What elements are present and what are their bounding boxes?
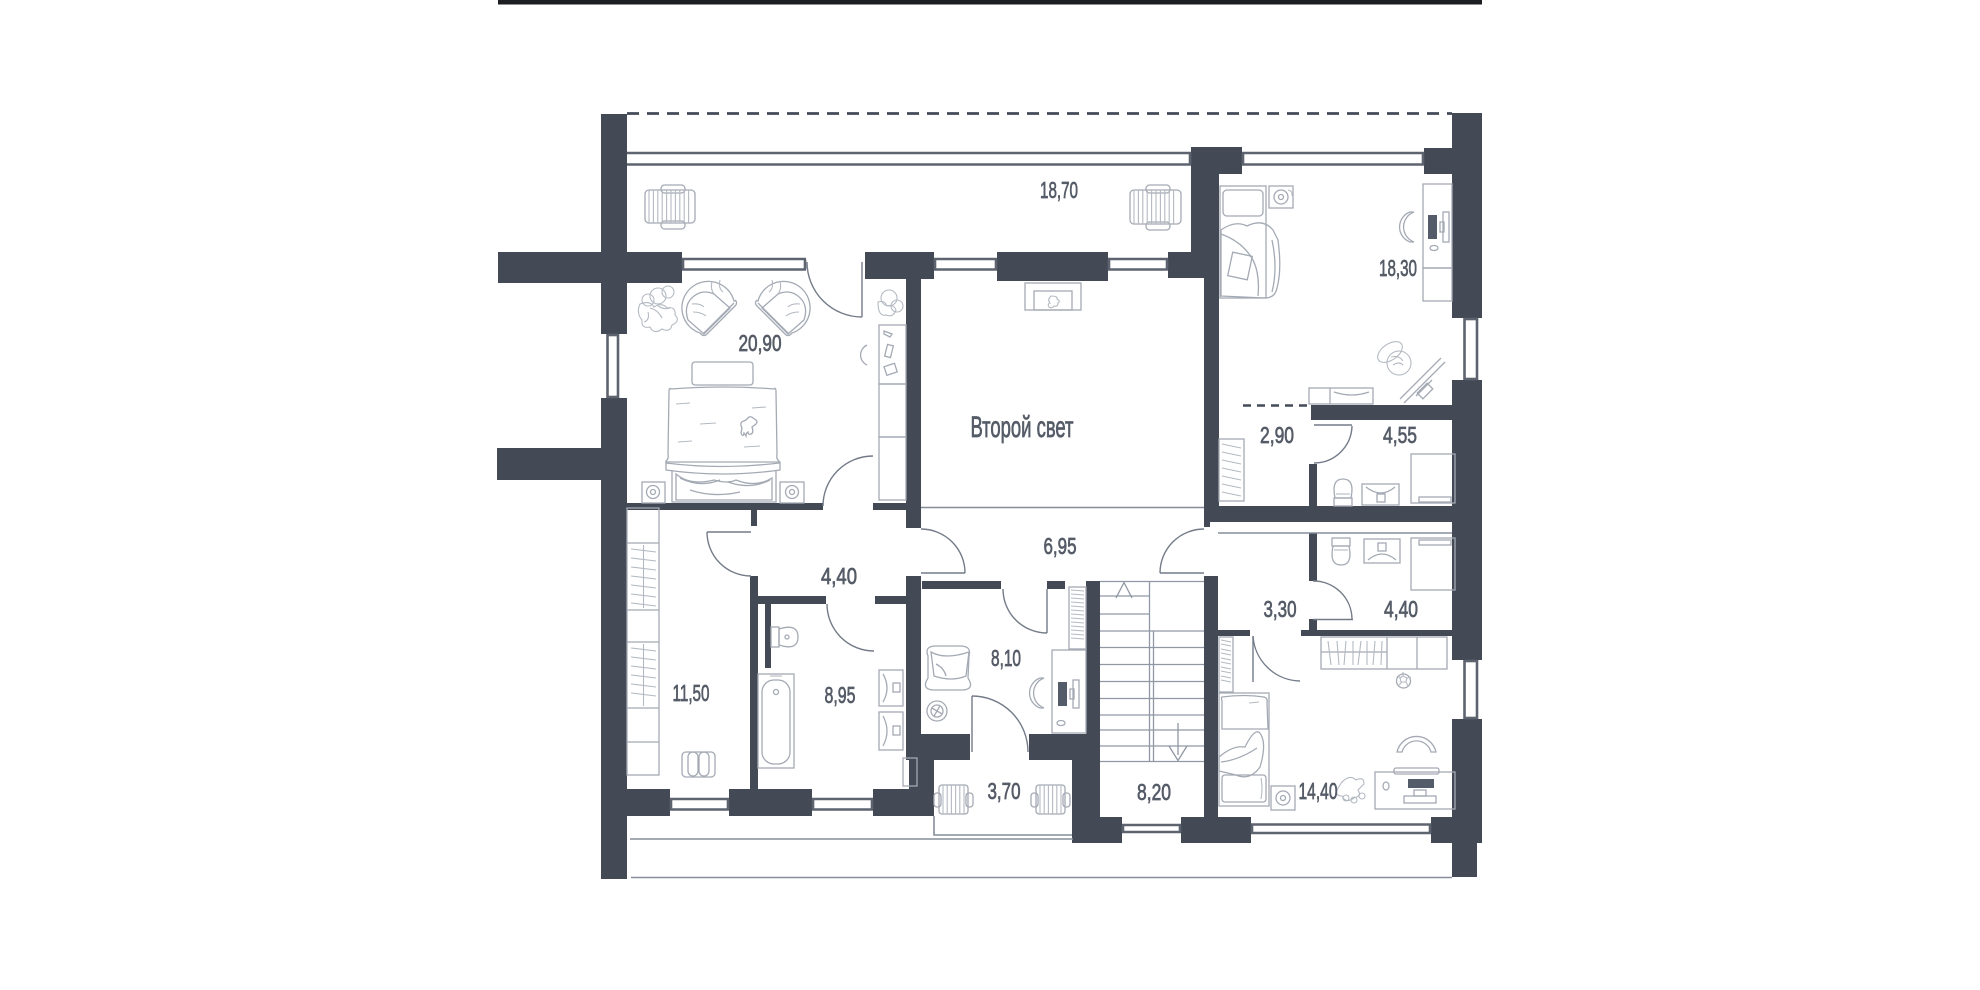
- svg-text:4,55: 4,55: [1383, 422, 1417, 448]
- svg-text:8,95: 8,95: [825, 682, 856, 708]
- svg-text:18,30: 18,30: [1379, 255, 1417, 281]
- svg-text:4,40: 4,40: [821, 563, 857, 589]
- svg-text:4,40: 4,40: [1384, 596, 1418, 622]
- svg-text:14,40: 14,40: [1299, 778, 1338, 804]
- svg-text:3,30: 3,30: [1264, 596, 1297, 622]
- svg-text:18,70: 18,70: [1040, 177, 1078, 203]
- svg-text:8,20: 8,20: [1137, 779, 1171, 805]
- svg-text:20,90: 20,90: [739, 330, 782, 356]
- svg-text:8,10: 8,10: [991, 645, 1021, 671]
- svg-text:2,90: 2,90: [1260, 422, 1294, 448]
- svg-text:6,95: 6,95: [1044, 533, 1077, 559]
- svg-text:11,50: 11,50: [673, 680, 710, 706]
- svg-text:3,70: 3,70: [988, 778, 1021, 804]
- svg-text:Второй свет: Второй свет: [971, 411, 1074, 444]
